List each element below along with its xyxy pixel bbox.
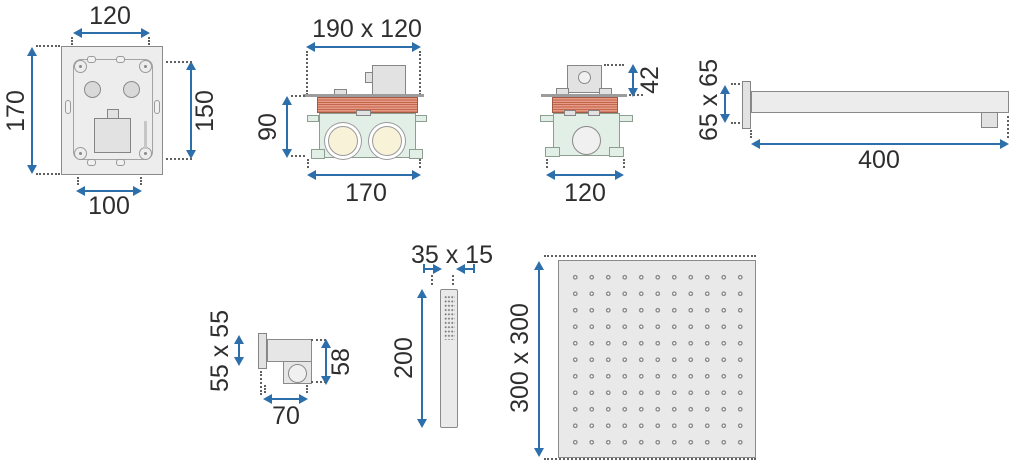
extension-line	[306, 51, 308, 95]
dim-arrow	[73, 27, 150, 39]
dim-label-mixer-side-width: 170	[328, 181, 404, 205]
extension-line	[311, 339, 326, 341]
extension-line	[306, 385, 308, 393]
dim-label-mixer-end-width: 120	[549, 181, 621, 205]
extension-line	[546, 159, 548, 168]
body-side-tab	[415, 115, 427, 122]
body-notch	[564, 110, 576, 116]
dim-label-holder-height: 58	[329, 302, 353, 422]
mount-slot	[87, 159, 96, 166]
arm-outlet-stub	[981, 112, 998, 128]
extension-line	[166, 158, 192, 160]
mount-slot	[65, 100, 71, 114]
mount-slot	[154, 100, 160, 114]
valve-port-circle	[84, 81, 101, 98]
dim-label-mixer-end-offset: 42	[638, 20, 662, 140]
extension-line	[36, 173, 60, 175]
dim-arrow	[233, 335, 245, 366]
holder-wall-flange	[258, 333, 267, 369]
dim-label-mixer-side-plate: 190 x 120	[306, 17, 428, 41]
dim-arrow-left	[425, 263, 442, 275]
extension-line	[1007, 116, 1009, 138]
body-notch	[588, 110, 600, 116]
corner-screw-pad	[139, 60, 152, 73]
cartridge-body	[94, 118, 131, 153]
dim-end-tick	[473, 264, 475, 273]
dim-label-handshower-length: 200	[392, 298, 416, 418]
extension-line	[71, 37, 73, 45]
water-port	[572, 126, 601, 155]
showerhead-nozzle-grid	[567, 269, 748, 450]
valve-block	[372, 65, 406, 95]
extension-line	[623, 159, 625, 168]
extension-line	[291, 95, 305, 97]
dim-label-mixer-front-width: 120	[85, 4, 135, 28]
extension-line	[148, 37, 150, 45]
extension-line	[544, 458, 756, 460]
handshower-spray-face	[444, 295, 455, 340]
valve-connector	[365, 72, 373, 83]
corner-screw-pad	[74, 60, 87, 73]
extension-line	[419, 51, 421, 95]
extension-line	[166, 61, 192, 63]
body-foot	[409, 149, 423, 159]
water-port	[328, 126, 358, 156]
arm-wall-flange	[742, 81, 751, 129]
corner-screw-pad	[74, 147, 87, 160]
extension-line	[750, 130, 752, 138]
body-side-tab	[540, 115, 554, 122]
water-port	[372, 126, 402, 156]
extension-line	[260, 371, 262, 395]
body-side-tab	[619, 115, 633, 122]
side-rail	[144, 121, 147, 149]
dim-arrow-right	[456, 263, 473, 275]
adjustable-depth-zone	[552, 97, 618, 113]
mount-slot	[87, 56, 96, 63]
extension-line	[431, 275, 433, 285]
dim-label-mixer-front-height: 170	[4, 51, 28, 171]
extension-line	[419, 159, 421, 168]
body-foot	[609, 147, 624, 157]
body-side-tab	[307, 115, 319, 122]
dim-arrow	[306, 41, 421, 53]
extension-line	[36, 45, 60, 47]
extension-line	[140, 177, 142, 185]
dim-label-arm-length: 400	[839, 148, 919, 172]
valve-port-circle	[123, 81, 140, 98]
dim-arrow	[281, 96, 293, 158]
body-foot	[311, 149, 325, 159]
dim-label-holder-section: 55 x 55	[208, 291, 232, 411]
extension-line	[544, 255, 756, 257]
dim-label-mixer-front-inner-height: 150	[193, 51, 217, 171]
extension-line	[452, 275, 454, 285]
extension-line	[311, 381, 326, 383]
dim-arrow	[719, 85, 731, 123]
body-foot	[545, 147, 560, 157]
extension-line	[77, 177, 79, 185]
extension-line	[291, 155, 305, 157]
dim-label-holder-reach: 70	[250, 404, 322, 428]
mount-slot	[116, 56, 125, 63]
extension-line	[307, 159, 309, 168]
extension-line	[264, 385, 266, 393]
valve-screw	[578, 71, 591, 84]
holder-arm	[267, 339, 312, 362]
extension-line	[629, 94, 643, 96]
dim-arrow	[533, 261, 545, 457]
shower-set-dimensions-diagram: 120 170 150 100 190 x 120	[0, 0, 1020, 469]
dim-label-mixer-front-hole-spacing: 100	[73, 194, 145, 218]
dim-label-showerhead-size: 300 x 300	[508, 268, 532, 448]
arm-bar	[751, 91, 1009, 113]
dim-label-mixer-side-depth: 90	[256, 67, 280, 187]
dim-label-arm-section: 65 x 65	[697, 40, 721, 160]
body-notch	[356, 110, 371, 116]
mount-slot	[116, 159, 125, 166]
extension-line	[604, 64, 624, 66]
holder-cup-hole	[288, 364, 307, 383]
